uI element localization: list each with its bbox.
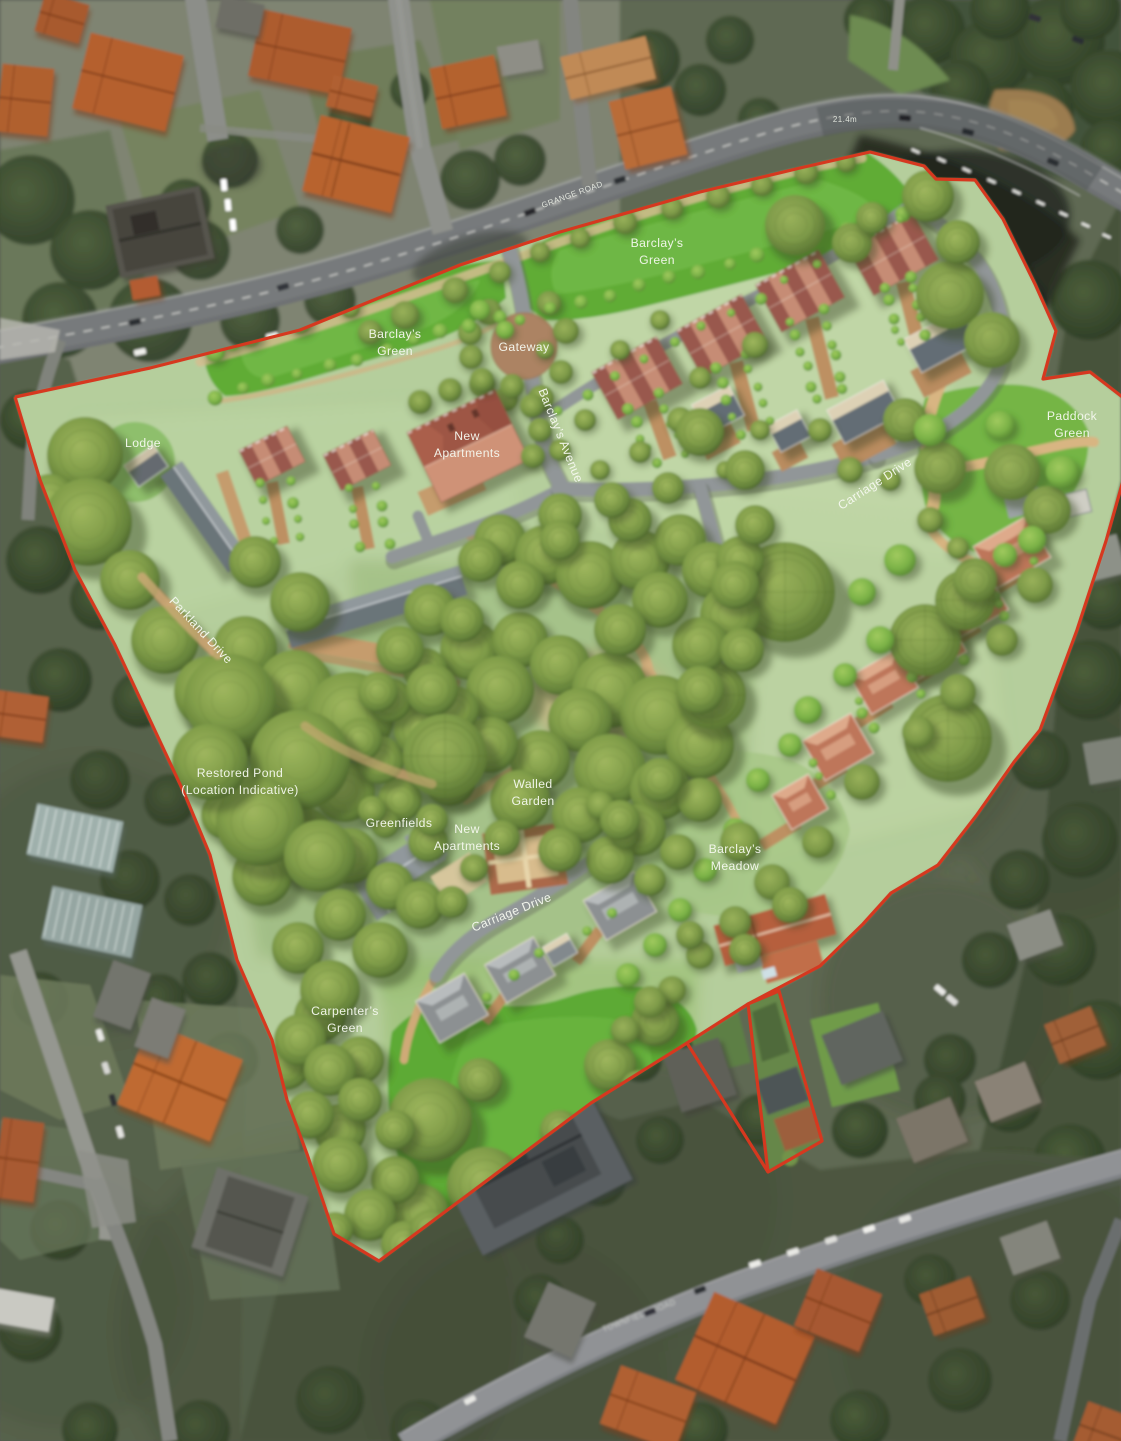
svg-text:Barclay’s: Barclay’s <box>631 236 684 250</box>
svg-text:Walled: Walled <box>513 777 552 791</box>
svg-text:Garden: Garden <box>511 794 554 808</box>
svg-text:Restored Pond: Restored Pond <box>197 766 284 780</box>
svg-text:Green: Green <box>327 1021 363 1035</box>
svg-text:Barclay’s: Barclay’s <box>369 327 422 341</box>
svg-text:New: New <box>454 429 480 443</box>
svg-text:Green: Green <box>639 253 675 267</box>
svg-text:Gateway: Gateway <box>499 340 550 354</box>
svg-text:Green: Green <box>377 344 413 358</box>
svg-text:Carpenter’s: Carpenter’s <box>311 1004 379 1018</box>
svg-text:Barclay’s: Barclay’s <box>709 842 762 856</box>
svg-text:New: New <box>454 822 480 836</box>
svg-text:Lodge: Lodge <box>125 436 161 450</box>
svg-text:Apartments: Apartments <box>434 446 500 460</box>
svg-text:Paddock: Paddock <box>1047 409 1098 423</box>
svg-text:Meadow: Meadow <box>711 859 759 873</box>
svg-text:21.4m: 21.4m <box>833 115 857 124</box>
svg-text:Green: Green <box>1054 426 1090 440</box>
svg-text:Apartments: Apartments <box>434 839 500 853</box>
svg-text:(Location Indicative): (Location Indicative) <box>181 783 298 797</box>
svg-text:Greenfields: Greenfields <box>366 816 433 830</box>
